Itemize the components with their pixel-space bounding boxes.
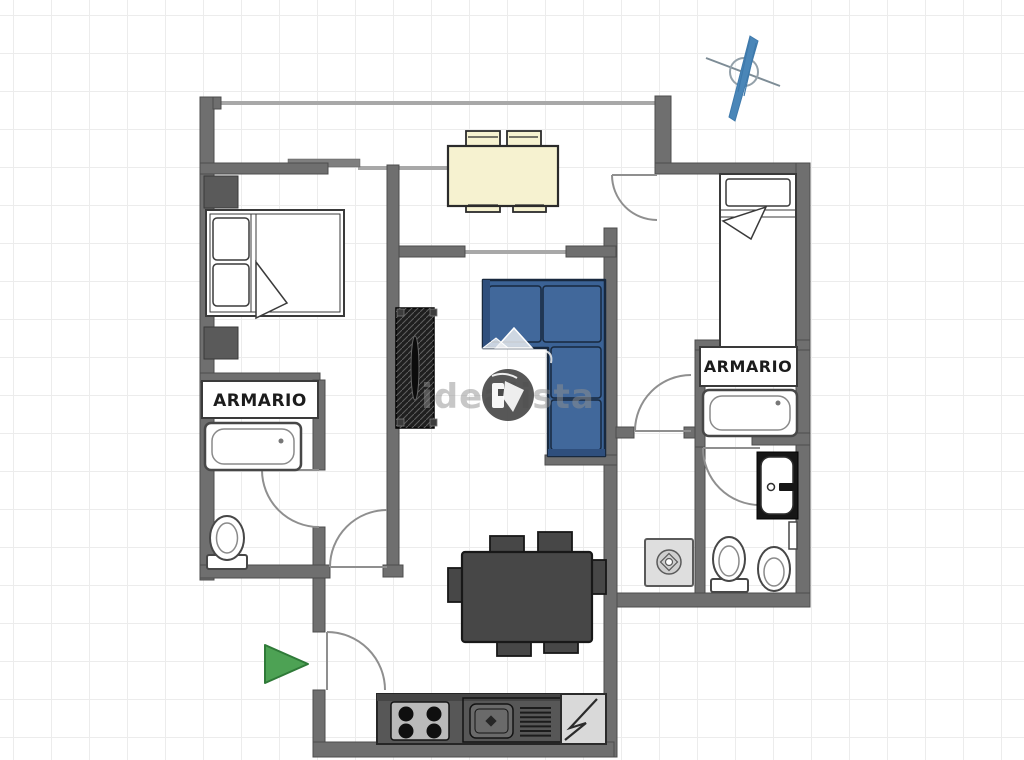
bidet bbox=[758, 547, 790, 591]
compass-icon bbox=[706, 36, 780, 121]
knob bbox=[430, 309, 437, 316]
wall-segment bbox=[655, 96, 671, 167]
wall-segment bbox=[313, 690, 325, 745]
faucet bbox=[768, 484, 775, 491]
burner bbox=[427, 724, 442, 739]
door-bathroom-left bbox=[262, 470, 319, 527]
wall-segment bbox=[616, 427, 634, 438]
wardrobe-left: ARMARIO bbox=[202, 381, 318, 418]
refrigerator bbox=[561, 694, 606, 744]
door-bathroom-right bbox=[703, 448, 760, 505]
wall-segment bbox=[695, 447, 705, 593]
terrace-railing bbox=[218, 101, 656, 105]
toilet-left bbox=[207, 516, 247, 569]
bathtub-left bbox=[205, 423, 301, 470]
window-line bbox=[358, 166, 448, 170]
floor-plan-drawing: ARMARIO bbox=[0, 0, 1024, 760]
nightstand bbox=[204, 176, 238, 208]
kitchen bbox=[377, 694, 606, 744]
sink-vanity bbox=[757, 452, 798, 519]
pillow bbox=[213, 218, 249, 260]
wall-segment bbox=[313, 578, 325, 632]
wall-segment bbox=[613, 593, 810, 607]
sliding-door-line bbox=[463, 250, 566, 254]
wall-segment bbox=[313, 527, 325, 567]
knob bbox=[430, 419, 437, 426]
burner bbox=[399, 707, 414, 722]
nightstand bbox=[204, 327, 238, 359]
corner-sofa bbox=[483, 280, 605, 456]
wardrobe-right-label: ARMARIO bbox=[704, 357, 792, 376]
door-entrance bbox=[327, 632, 385, 690]
pillow bbox=[213, 264, 249, 306]
drain bbox=[279, 439, 284, 444]
washing-machine bbox=[645, 539, 693, 586]
door-bedroom-right bbox=[612, 175, 657, 220]
burner bbox=[399, 724, 414, 739]
wall-segment bbox=[655, 163, 810, 174]
burner bbox=[427, 707, 442, 722]
wardrobe-right: ARMARIO bbox=[700, 347, 797, 386]
dining-table bbox=[462, 552, 592, 642]
wall-segment bbox=[796, 163, 810, 607]
drain bbox=[776, 401, 781, 406]
sofa-cushions bbox=[489, 286, 601, 450]
dining-set-4 bbox=[448, 131, 558, 212]
wall-segment bbox=[213, 97, 221, 109]
dining-set-6 bbox=[448, 532, 606, 656]
wardrobe-left-label: ARMARIO bbox=[213, 391, 307, 411]
bedroom-left bbox=[204, 176, 344, 359]
compass-needle bbox=[729, 36, 758, 121]
pillow bbox=[726, 179, 790, 206]
bathtub-right bbox=[703, 390, 797, 436]
knob bbox=[397, 309, 404, 316]
dining-table bbox=[448, 146, 558, 206]
entrance-arrow-icon bbox=[265, 645, 308, 683]
wall-segment bbox=[566, 246, 616, 257]
toilet-right bbox=[711, 537, 748, 592]
stove bbox=[391, 702, 449, 740]
door-inner-hall bbox=[635, 375, 691, 431]
single-bed bbox=[720, 174, 796, 355]
wall-segment bbox=[200, 163, 328, 174]
faucet-bar bbox=[779, 483, 794, 491]
double-bed bbox=[206, 210, 344, 318]
towel-rail bbox=[789, 522, 797, 549]
knob bbox=[397, 419, 404, 426]
door-bedroom-left bbox=[330, 510, 387, 567]
floor-plan: ARMARIO bbox=[0, 0, 1024, 760]
drainer bbox=[520, 708, 551, 736]
bedroom-right bbox=[720, 174, 796, 355]
wall-segment bbox=[393, 246, 465, 257]
